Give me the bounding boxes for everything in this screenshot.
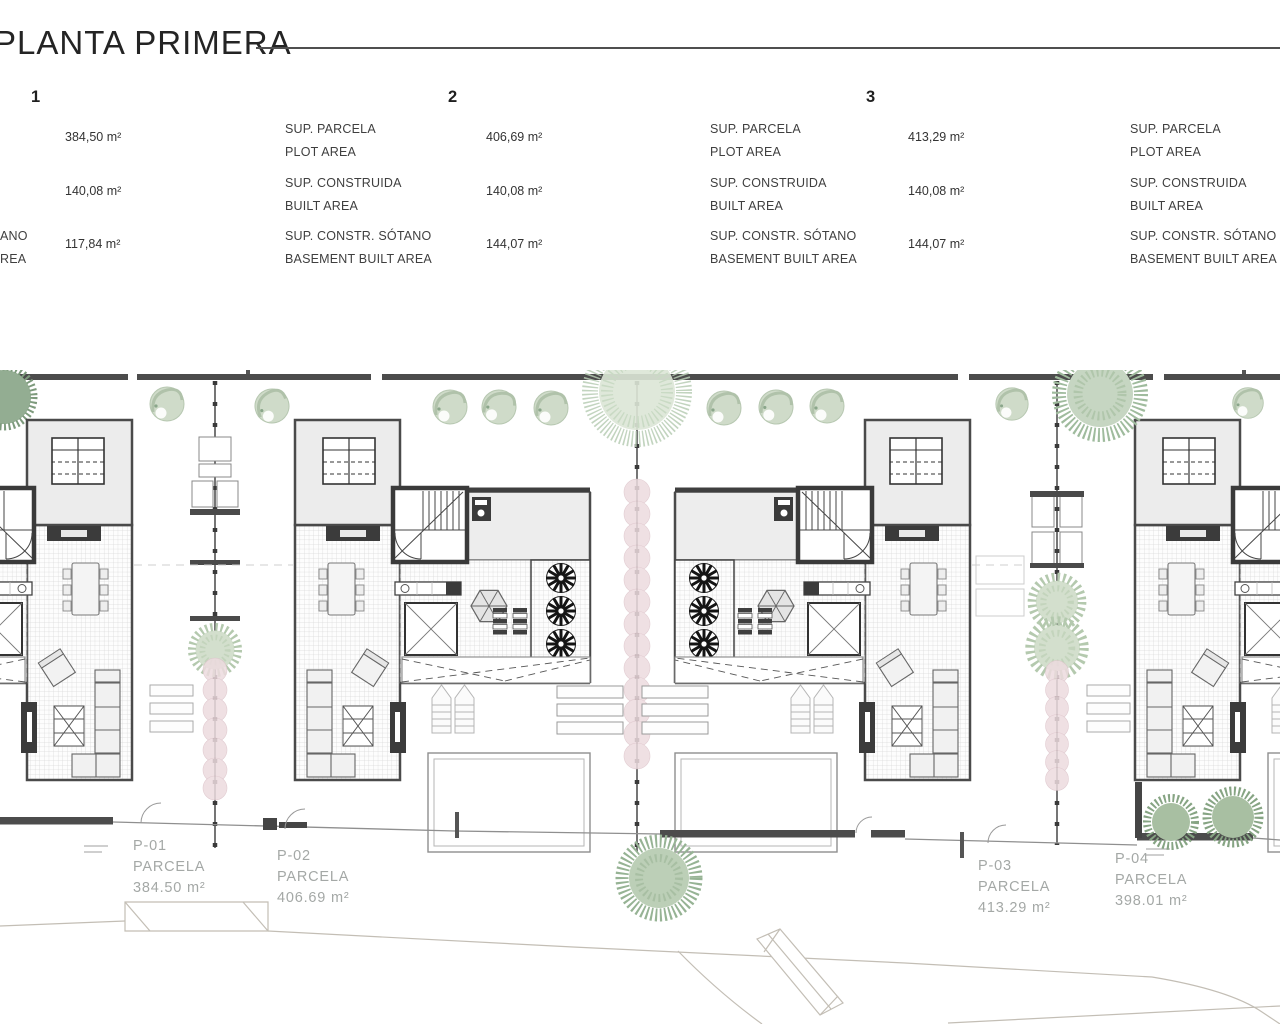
unit-number-3: 3 xyxy=(866,88,875,107)
fuzzy-tree-bottom-center xyxy=(622,841,696,915)
title-rule xyxy=(256,47,1280,49)
parcel-label-p03: P-03 PARCELA 413.29 m² xyxy=(978,856,1051,919)
micro-annotation-marks xyxy=(84,846,1170,855)
spec-label-3-built: SUP. CONSTRUIDABUILT AREA xyxy=(710,172,827,218)
villa-3 xyxy=(642,420,970,852)
fuzzy-tree-top-right xyxy=(1059,370,1141,435)
unit-number-2: 2 xyxy=(448,88,457,107)
unit-number-1: 1 xyxy=(31,88,40,107)
terrain-lines xyxy=(0,902,1280,1024)
dandelion-tree-center xyxy=(590,370,684,439)
divider-parcel-1-2 xyxy=(190,381,240,848)
villa-1 xyxy=(0,420,132,852)
spec-label-4-plot: SUP. PARCELAPLOT AREA xyxy=(1130,118,1221,164)
parcel-word: PARCELA xyxy=(978,877,1051,898)
parcel-word: PARCELA xyxy=(277,867,350,888)
spec-label-2-plot: SUP. PARCELAPLOT AREA xyxy=(285,118,376,164)
spec-label-1-basement-fragment: ANO REA xyxy=(0,225,28,271)
parcel-word: PARCELA xyxy=(1115,870,1188,891)
spec-value-2-plot: 406,69 m² xyxy=(486,130,542,144)
divider-parcel-2-3 xyxy=(624,381,650,852)
villa-2 xyxy=(295,420,623,852)
spec-value-3-built: 140,08 m² xyxy=(908,184,964,198)
parcel-area: 398.01 m² xyxy=(1115,891,1188,912)
parcel-area: 406.69 m² xyxy=(277,888,350,909)
garden-steps-parcel-4 xyxy=(1087,685,1130,732)
spec-value-3-basement: 144,07 m² xyxy=(908,237,964,251)
spec-value-3-plot: 413,29 m² xyxy=(908,130,964,144)
spec-label-3-basement: SUP. CONSTR. SÓTANOBASEMENT BUILT AREA xyxy=(710,225,857,271)
spec-label-fragment-en: REA xyxy=(0,248,28,271)
spec-label-4-built: SUP. CONSTRUIDABUILT AREA xyxy=(1130,172,1247,218)
parcel-label-p04: P-04 PARCELA 398.01 m² xyxy=(1115,849,1188,912)
parcel-label-p01: P-01 PARCELA 384.50 m² xyxy=(133,836,206,899)
spec-value-2-basement: 144,07 m² xyxy=(486,237,542,251)
spec-label-2-basement: SUP. CONSTR. SÓTANOBASEMENT BUILT AREA xyxy=(285,225,432,271)
parcel-area: 384.50 m² xyxy=(133,878,206,899)
parcel-area: 413.29 m² xyxy=(978,898,1051,919)
spec-label-fragment-es: ANO xyxy=(0,225,28,248)
villa-4 xyxy=(1135,420,1280,852)
parcel-id: P-01 xyxy=(133,836,206,857)
parcel-id: P-03 xyxy=(978,856,1051,877)
spec-value-2-built: 140,08 m² xyxy=(486,184,542,198)
spec-label-4-basement: SUP. CONSTR. SÓTANOBASEMENT BUILT AREA xyxy=(1130,225,1277,271)
page-title: PLANTA PRIMERA xyxy=(0,24,292,62)
parcel-id: P-02 xyxy=(277,846,350,867)
spec-value-1-built: 140,08 m² xyxy=(65,184,121,198)
spec-label-3-plot: SUP. PARCELAPLOT AREA xyxy=(710,118,801,164)
spec-value-1-plot: 384,50 m² xyxy=(65,130,121,144)
site-plan xyxy=(0,370,1280,1024)
parcel-id: P-04 xyxy=(1115,849,1188,870)
parcel-word: PARCELA xyxy=(133,857,206,878)
pink-hedge xyxy=(1046,661,1069,791)
spec-label-2-built: SUP. CONSTRUIDABUILT AREA xyxy=(285,172,402,218)
divider-parcel-3-4 xyxy=(1030,381,1084,845)
spec-value-1-basement: 117,84 m² xyxy=(65,237,120,251)
pink-hedge xyxy=(203,658,227,800)
garden-steps-parcel-1 xyxy=(150,685,193,732)
plan-sheet: PLANTA PRIMERA 1 2 3 384,50 m² 140,08 m²… xyxy=(0,0,1280,1024)
parcel-label-p02: P-02 PARCELA 406.69 m² xyxy=(277,846,350,909)
